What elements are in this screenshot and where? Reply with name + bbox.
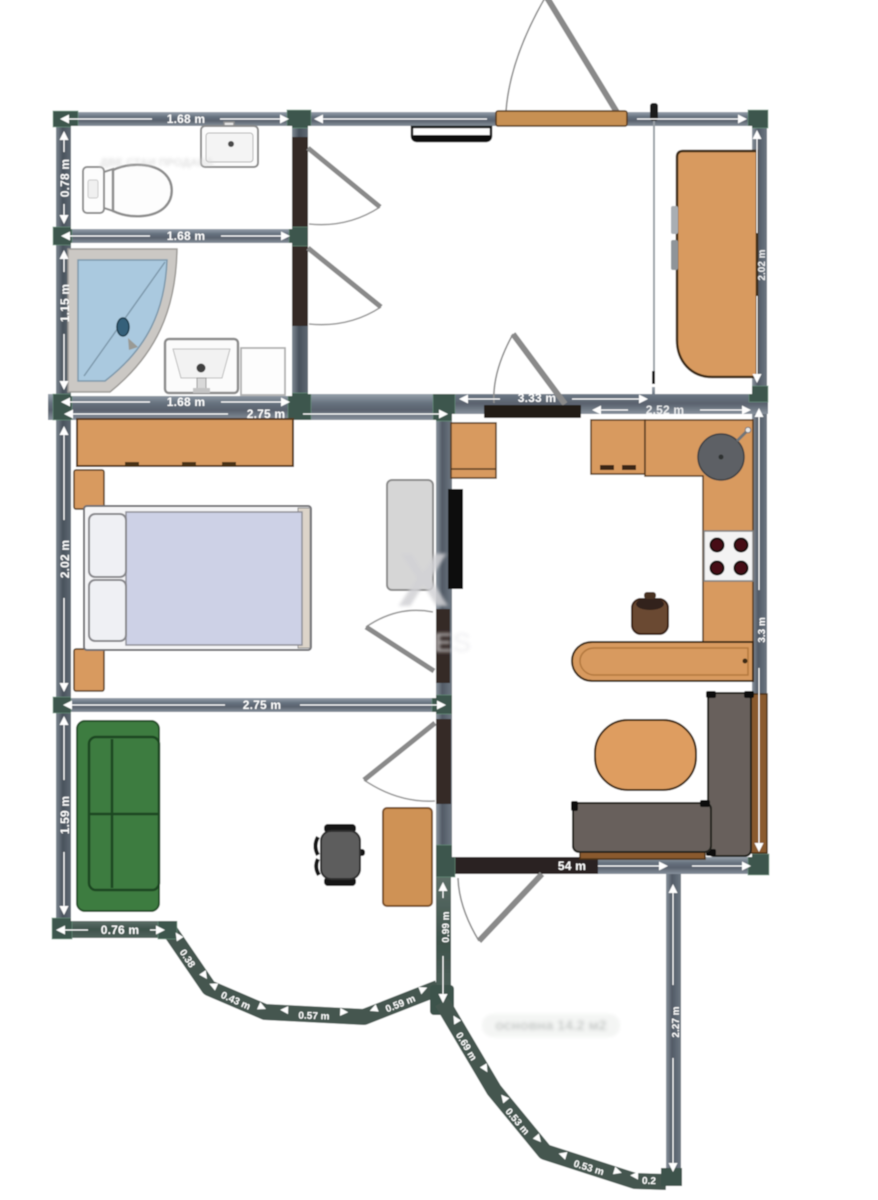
svg-text:3.3 m: 3.3 m [757, 617, 768, 643]
svg-text:ES: ES [434, 627, 471, 658]
svg-text:1.59 m: 1.59 m [58, 796, 72, 835]
svg-text:0.2: 0.2 [642, 1176, 657, 1187]
svg-text:2.75 m: 2.75 m [247, 407, 286, 421]
svg-text:2.75 m: 2.75 m [243, 698, 282, 712]
svg-text:0.78 m: 0.78 m [58, 159, 72, 198]
svg-text:0.99 m: 0.99 m [441, 911, 452, 942]
svg-text:1.68 m: 1.68 m [167, 229, 206, 243]
svg-text:54 m: 54 m [558, 859, 586, 873]
svg-text:0.57 m: 0.57 m [298, 1010, 330, 1022]
svg-text:ДВЕ СТАИ ПРОДАВА: ДВЕ СТАИ ПРОДАВА [100, 157, 213, 169]
svg-text:3.33 m: 3.33 m [518, 391, 557, 405]
svg-text:0.76 m: 0.76 m [101, 923, 140, 937]
svg-text:1.68 m: 1.68 m [167, 112, 206, 126]
svg-text:2.02 m: 2.02 m [58, 540, 72, 579]
svg-text:2.52 m: 2.52 m [646, 403, 685, 417]
svg-text:основна 14.2 м2: основна 14.2 м2 [495, 1017, 606, 1033]
svg-text:1.15 m: 1.15 m [58, 284, 72, 323]
svg-text:2.27 m: 2.27 m [671, 1006, 682, 1037]
svg-text:2.02 m: 2.02 m [757, 249, 768, 280]
svg-text:1.68 m: 1.68 m [167, 395, 206, 409]
svg-text:X: X [398, 538, 449, 623]
